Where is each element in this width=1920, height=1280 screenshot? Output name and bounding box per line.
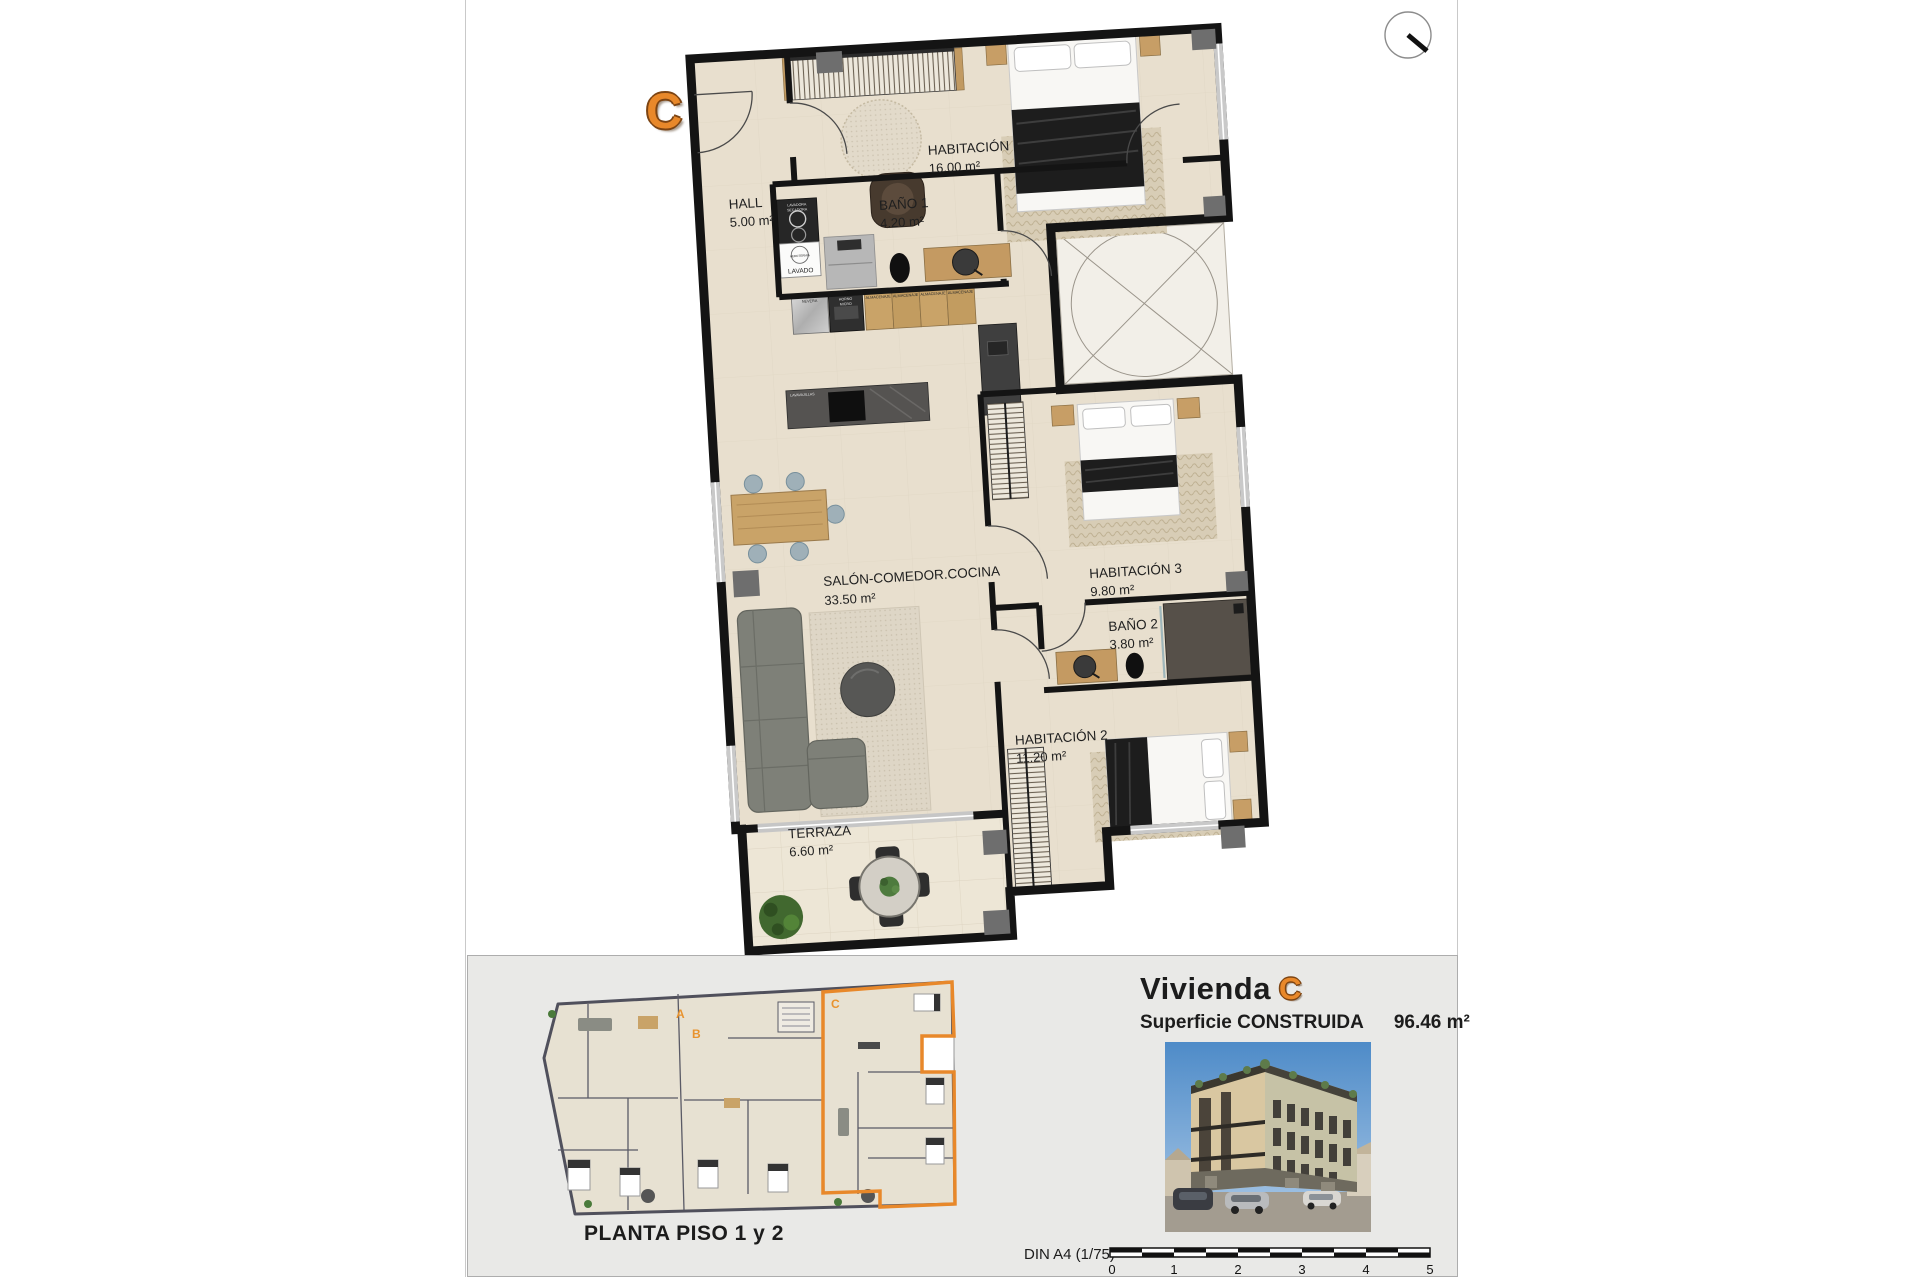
kitchen-tall-counter xyxy=(978,323,1021,415)
sheet-edge-left xyxy=(465,0,466,1277)
svg-text:6.60 m²: 6.60 m² xyxy=(789,842,835,860)
washer-dryer-column: LAVADORA SECADORA xyxy=(777,198,820,244)
horno-label-1: HORNO xyxy=(839,297,853,302)
scale-bar: 0 1 2 3 4 5 xyxy=(1108,1242,1442,1280)
vanity-bath2 xyxy=(1056,649,1118,685)
svg-text:3.80 m²: 3.80 m² xyxy=(1109,635,1155,653)
svg-text:2: 2 xyxy=(1234,1262,1241,1277)
overview-plan: A B C xyxy=(528,978,978,1230)
svg-text:16.00 m²: 16.00 m² xyxy=(928,158,981,176)
svg-text:BAÑO 1: BAÑO 1 xyxy=(879,195,929,213)
overview-title: PLANTA PISO 1 y 2 xyxy=(584,1222,784,1246)
svg-text:33.50 m²: 33.50 m² xyxy=(824,590,877,608)
plan-sheet: C xyxy=(0,0,1920,1280)
svg-text:9.80 m²: 9.80 m² xyxy=(1090,582,1136,600)
svg-text:HALL: HALL xyxy=(728,195,763,212)
surface-value: 96.46 m² xyxy=(1394,1012,1470,1033)
vanity-bath1 xyxy=(924,243,1012,281)
svg-text:4.20 m²: 4.20 m² xyxy=(880,213,926,231)
svg-text:BAÑO 2: BAÑO 2 xyxy=(1108,616,1158,634)
mini-unit-a-label: A xyxy=(676,1007,685,1021)
unit-title: ViviendaC xyxy=(1140,971,1302,1007)
mini-elevator xyxy=(922,1036,954,1072)
svg-text:4: 4 xyxy=(1362,1262,1369,1277)
elevator-shaft xyxy=(1056,223,1233,385)
mini-unit-c-label: C xyxy=(831,997,840,1011)
building-photo xyxy=(1165,1042,1371,1232)
horno-label-2: MICRO xyxy=(840,302,852,307)
unit-title-prefix: Vivienda xyxy=(1140,971,1271,1006)
svg-text:5.00 m²: 5.00 m² xyxy=(729,212,775,230)
scale-format-label: DIN A4 (1/75) xyxy=(1024,1246,1115,1263)
svg-text:5: 5 xyxy=(1426,1262,1433,1277)
svg-text:0: 0 xyxy=(1108,1262,1115,1277)
svg-text:11.20 m²: 11.20 m² xyxy=(1016,748,1068,766)
wardrobe-hab3 xyxy=(987,402,1029,500)
shower-bath2 xyxy=(1160,599,1251,680)
north-arrow-icon xyxy=(1378,4,1442,68)
surface-row: Superficie CONSTRUIDA96.46 m² xyxy=(1140,1012,1470,1034)
unit-title-letter: C xyxy=(1279,971,1302,1006)
svg-text:3: 3 xyxy=(1298,1262,1305,1277)
wardrobe-hab2 xyxy=(1008,747,1052,889)
surface-label: Superficie CONSTRUIDA xyxy=(1140,1012,1364,1033)
svg-text:1: 1 xyxy=(1170,1262,1177,1277)
kitchen-island: LAVAVAJILLAS xyxy=(786,382,930,428)
aerotermia-closet: AEROTERMIA LAVADO xyxy=(779,242,821,278)
mini-unit-b-label: B xyxy=(692,1027,701,1041)
shower-bath1 xyxy=(824,234,877,289)
main-floor-plan: LAVADORA SECADORA AEROTERMIA LAVADO xyxy=(630,0,1290,990)
scale-ticks: 0 1 2 3 4 5 xyxy=(1108,1262,1433,1277)
